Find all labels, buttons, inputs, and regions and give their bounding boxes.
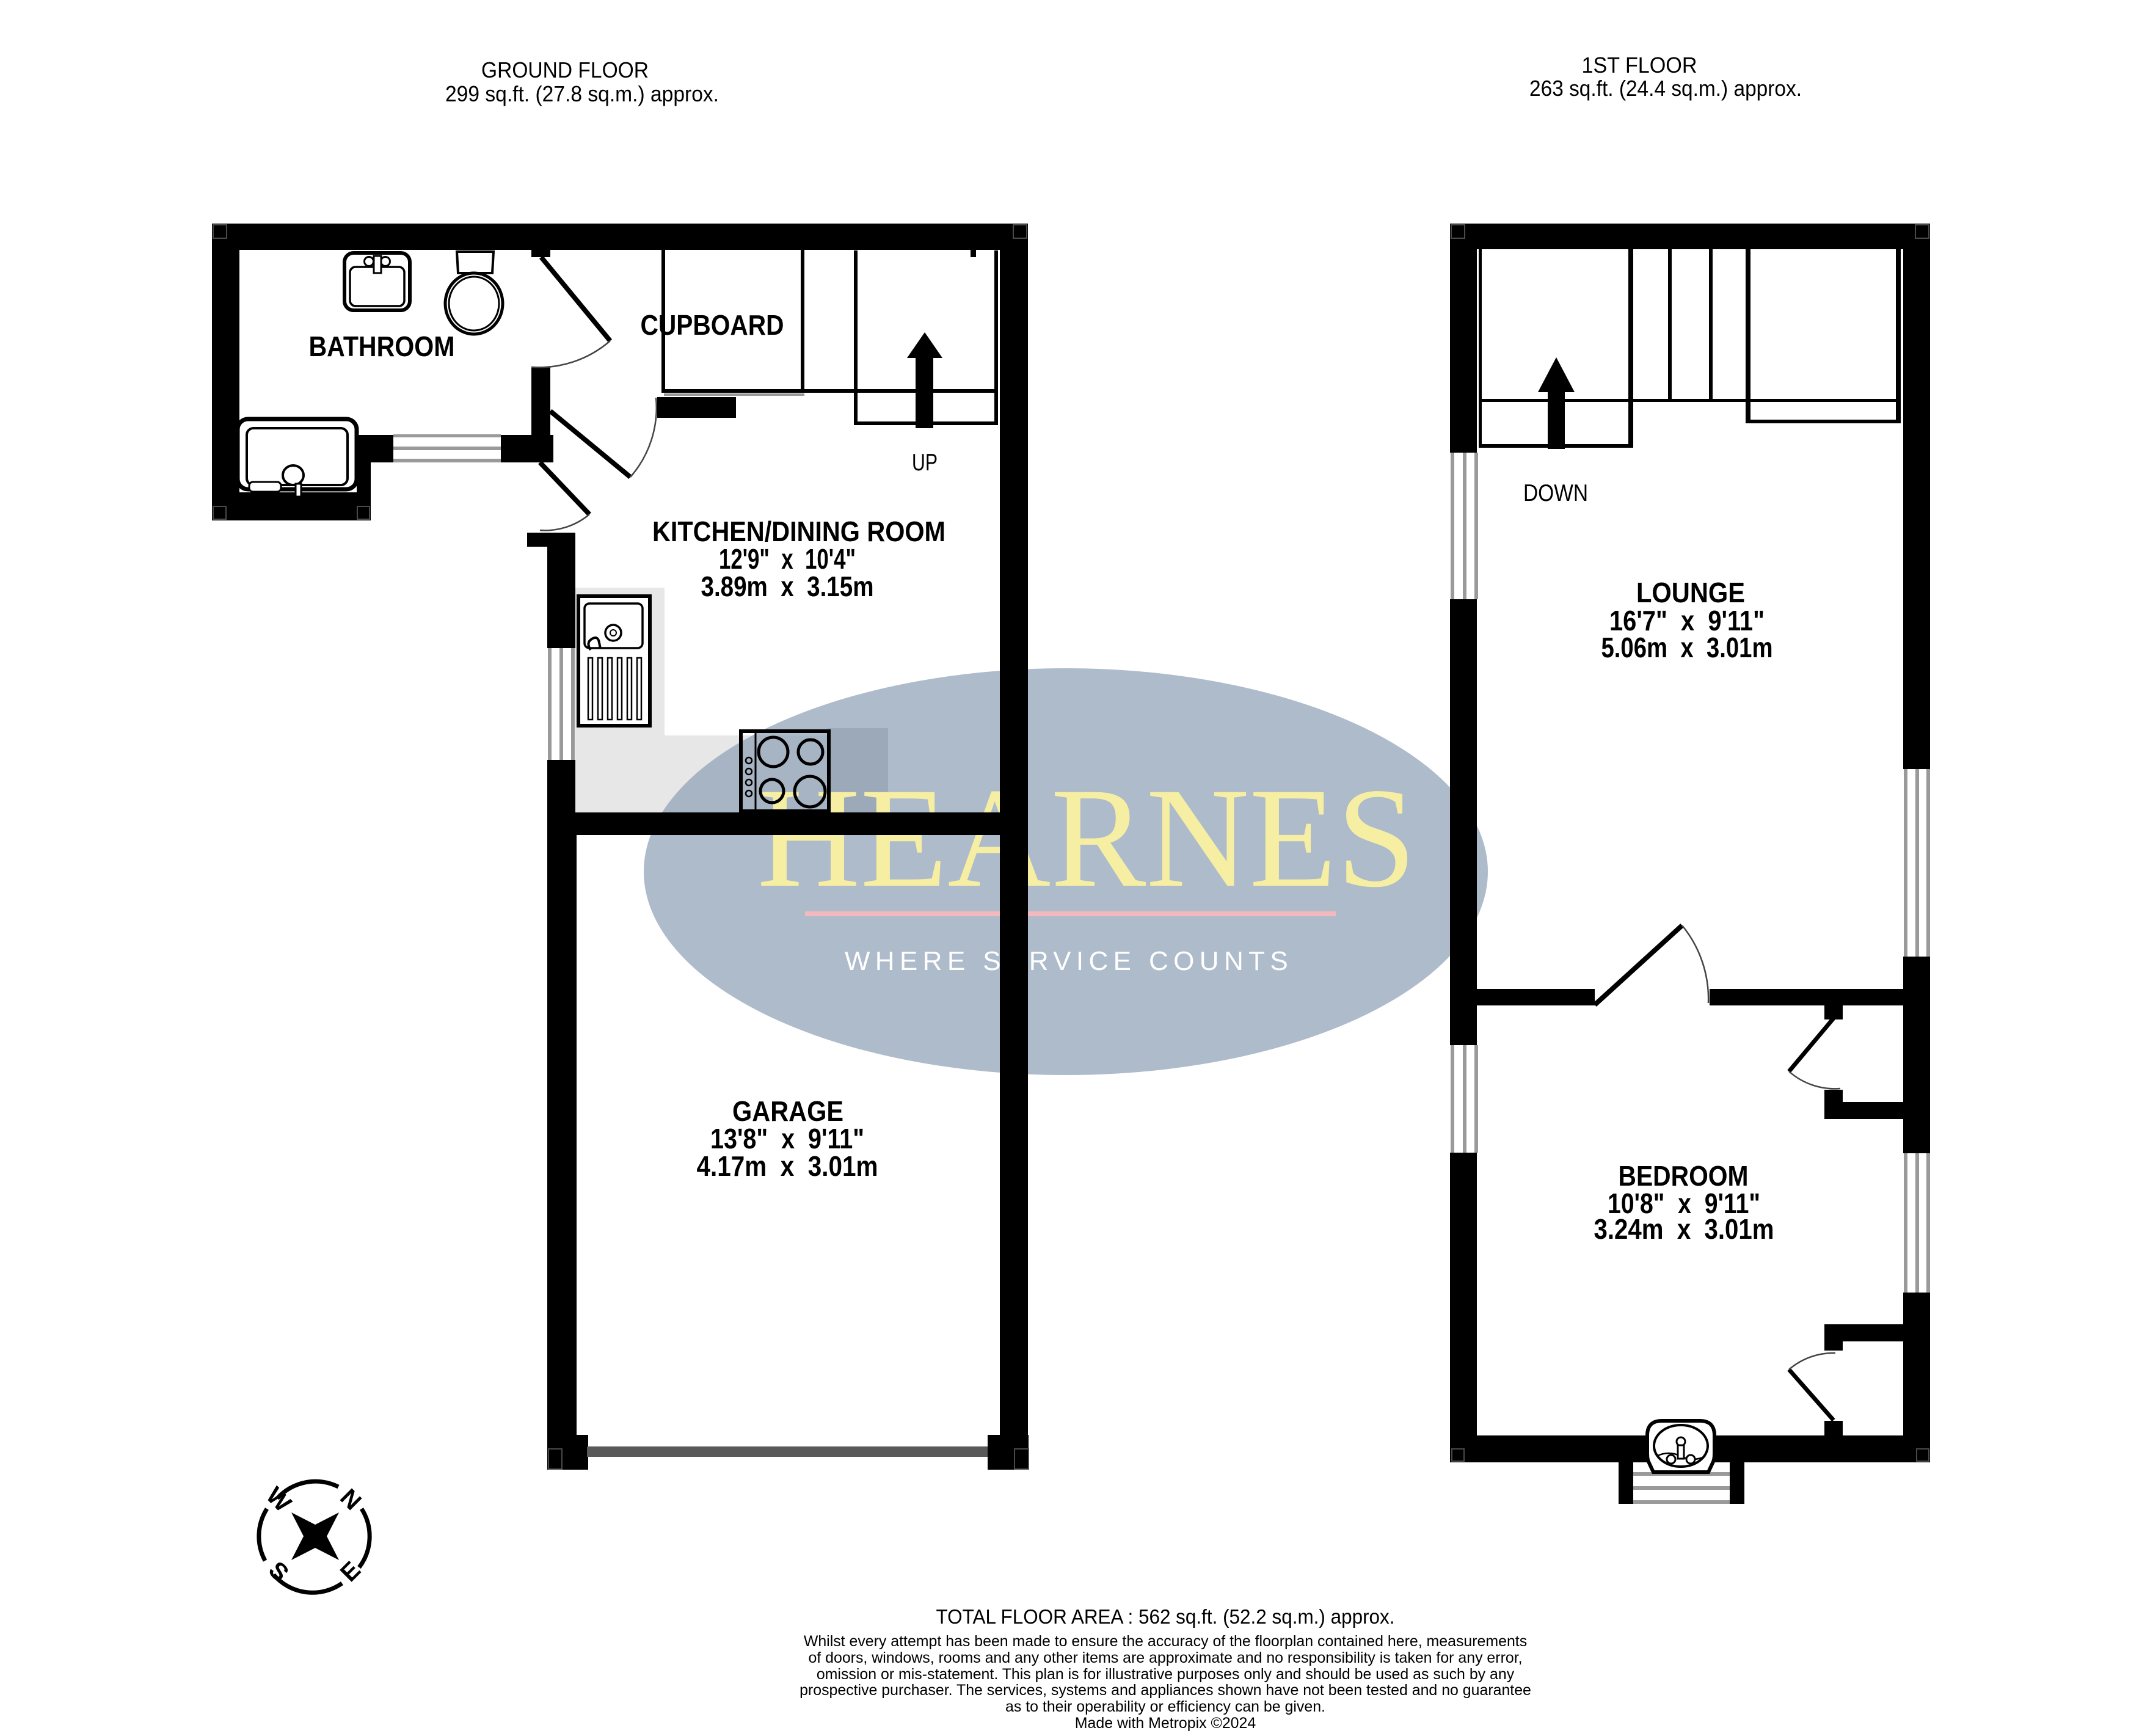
svg-text:299 sq.ft. (27.8 sq.m.) approx: 299 sq.ft. (27.8 sq.m.) approx. xyxy=(445,81,719,106)
svg-text:BATHROOM: BATHROOM xyxy=(309,330,455,362)
svg-text:4.17m x 3.01m: 4.17m x 3.01m xyxy=(697,1150,878,1182)
svg-text:UP: UP xyxy=(912,450,938,476)
svg-text:LOUNGE: LOUNGE xyxy=(1636,577,1745,608)
svg-text:as to their operability or eff: as to their operability or efficiency ca… xyxy=(1005,1698,1325,1715)
svg-text:Made with Metropix ©2024: Made with Metropix ©2024 xyxy=(1075,1715,1256,1732)
svg-text:HEARNES: HEARNES xyxy=(757,758,1416,917)
svg-text:prospective purchaser. The ser: prospective purchaser. The services, sys… xyxy=(800,1682,1531,1699)
svg-text:5.06m x 3.01m: 5.06m x 3.01m xyxy=(1601,632,1773,663)
svg-text:WHERE SERVICE COUNTS: WHERE SERVICE COUNTS xyxy=(845,946,1293,976)
svg-text:TOTAL FLOOR AREA : 562 sq.ft.: TOTAL FLOOR AREA : 562 sq.ft. (52.2 sq.m… xyxy=(936,1606,1395,1628)
svg-text:GROUND FLOOR: GROUND FLOOR xyxy=(481,57,649,82)
svg-text:263 sq.ft. (24.4 sq.m.) approx: 263 sq.ft. (24.4 sq.m.) approx. xyxy=(1529,76,1802,101)
svg-text:3.89m x 3.15m: 3.89m x 3.15m xyxy=(701,571,874,602)
svg-text:of doors, windows, rooms and a: of doors, windows, rooms and any other i… xyxy=(808,1649,1522,1666)
svg-text:CUPBOARD: CUPBOARD xyxy=(641,309,784,341)
svg-text:3.24m x 3.01m: 3.24m x 3.01m xyxy=(1594,1213,1774,1245)
svg-text:1ST FLOOR: 1ST FLOOR xyxy=(1582,53,1697,78)
svg-text:Whilst every attempt has been: Whilst every attempt has been made to en… xyxy=(804,1633,1527,1650)
svg-text:omission or mis-statement. Thi: omission or mis-statement. This plan is … xyxy=(817,1666,1515,1683)
svg-text:DOWN: DOWN xyxy=(1523,480,1588,506)
